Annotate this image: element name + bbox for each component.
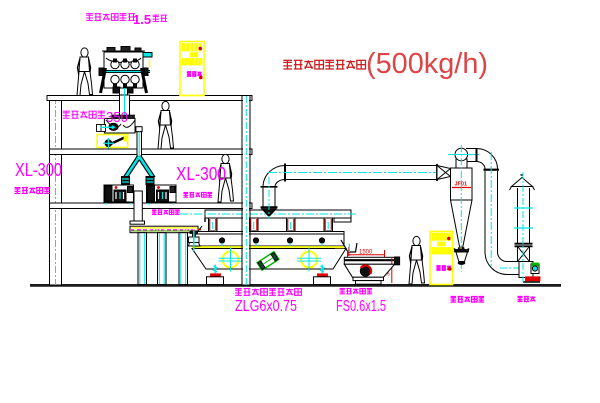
svg-text:FS0.6x1.5: FS0.6x1.5 xyxy=(336,298,386,315)
svg-text:XL-300: XL-300 xyxy=(15,160,62,180)
svg-text:1500: 1500 xyxy=(359,250,373,256)
svg-text:XL-300: XL-300 xyxy=(176,164,226,184)
svg-text:JF01: JF01 xyxy=(455,182,468,188)
svg-text:ZLG6x0.75: ZLG6x0.75 xyxy=(235,298,297,315)
svg-text:(500kg/h): (500kg/h) xyxy=(366,48,488,80)
svg-text:1.5: 1.5 xyxy=(133,12,151,27)
svg-text:350: 350 xyxy=(106,110,128,126)
